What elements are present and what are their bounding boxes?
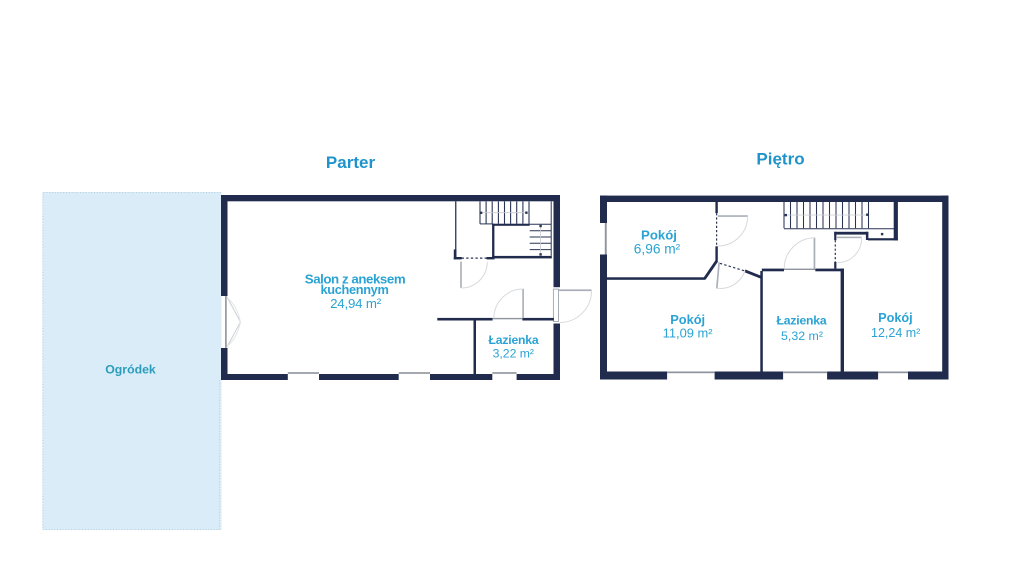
svg-text:Pokój: Pokój <box>670 312 705 327</box>
svg-text:5,32 m²: 5,32 m² <box>781 329 823 343</box>
svg-text:Łazienka: Łazienka <box>489 333 539 347</box>
svg-text:kuchennym: kuchennym <box>321 282 389 297</box>
svg-text:Parter: Parter <box>326 153 376 172</box>
svg-text:24,94 m²: 24,94 m² <box>330 296 382 311</box>
svg-text:Pokój: Pokój <box>641 228 677 243</box>
svg-text:11,09 m²: 11,09 m² <box>663 326 714 341</box>
svg-text:Łazienka: Łazienka <box>777 314 827 328</box>
svg-text:12,24 m²: 12,24 m² <box>871 326 920 340</box>
svg-text:3,22 m²: 3,22 m² <box>493 347 534 361</box>
svg-text:Pokój: Pokój <box>878 311 913 325</box>
svg-text:Ogródek: Ogródek <box>105 362 156 376</box>
svg-text:Piętro: Piętro <box>756 150 804 169</box>
svg-text:6,96 m²: 6,96 m² <box>634 242 681 257</box>
